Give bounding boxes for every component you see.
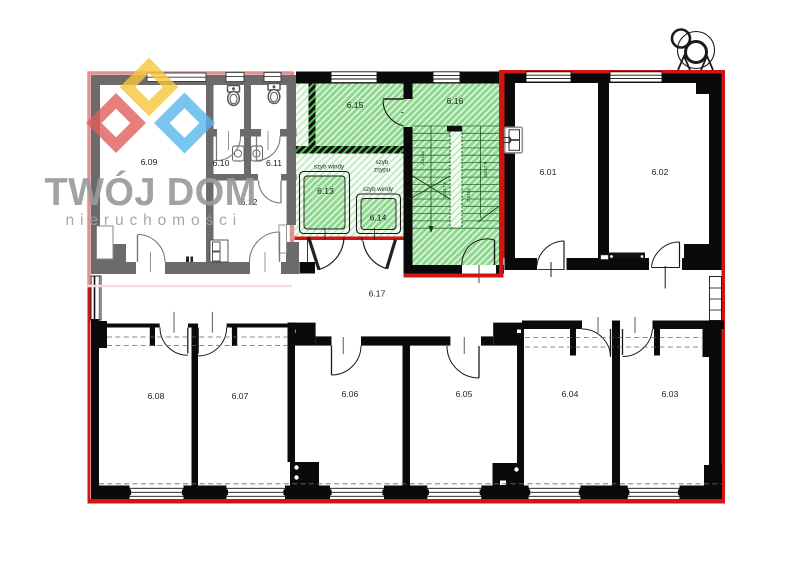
svg-text:6.11: 6.11 [266, 158, 282, 168]
svg-text:2.48: 2.48 [295, 145, 300, 154]
svg-text:szyb windy: szyb windy [363, 186, 394, 193]
svg-text:6.10: 6.10 [213, 158, 230, 168]
svg-text:nieruchomości: nieruchomości [66, 212, 243, 229]
svg-text:6.06: 6.06 [342, 389, 359, 399]
svg-text:6.13: 6.13 [317, 186, 334, 196]
svg-text:szyb windy: szyb windy [314, 164, 345, 171]
svg-text:szyb: szyb [376, 159, 389, 166]
svg-text:6.17: 6.17 [369, 289, 386, 299]
svg-text:15x17.5: 15x17.5 [483, 161, 488, 178]
svg-text:6.02: 6.02 [652, 167, 669, 177]
svg-text:6.14: 6.14 [370, 213, 387, 223]
svg-text:6.01: 6.01 [540, 167, 557, 177]
svg-text:6.15: 6.15 [347, 100, 364, 110]
svg-text:6.03: 6.03 [662, 389, 679, 399]
svg-text:6.09: 6.09 [141, 157, 158, 167]
svg-text:6.08: 6.08 [148, 391, 165, 401]
svg-text:2.515x: 2.515x [420, 150, 425, 164]
svg-text:zsypu: zsypu [374, 167, 391, 174]
svg-text:6.05: 6.05 [456, 389, 473, 399]
svg-text:6.16: 6.16 [447, 96, 464, 106]
svg-text:15x17.5: 15x17.5 [442, 181, 447, 198]
svg-text:6.04: 6.04 [562, 389, 579, 399]
svg-text:6.07: 6.07 [232, 391, 249, 401]
svg-text:2.515x: 2.515x [466, 187, 471, 201]
svg-text:TWÓJ DOM: TWÓJ DOM [45, 170, 257, 215]
